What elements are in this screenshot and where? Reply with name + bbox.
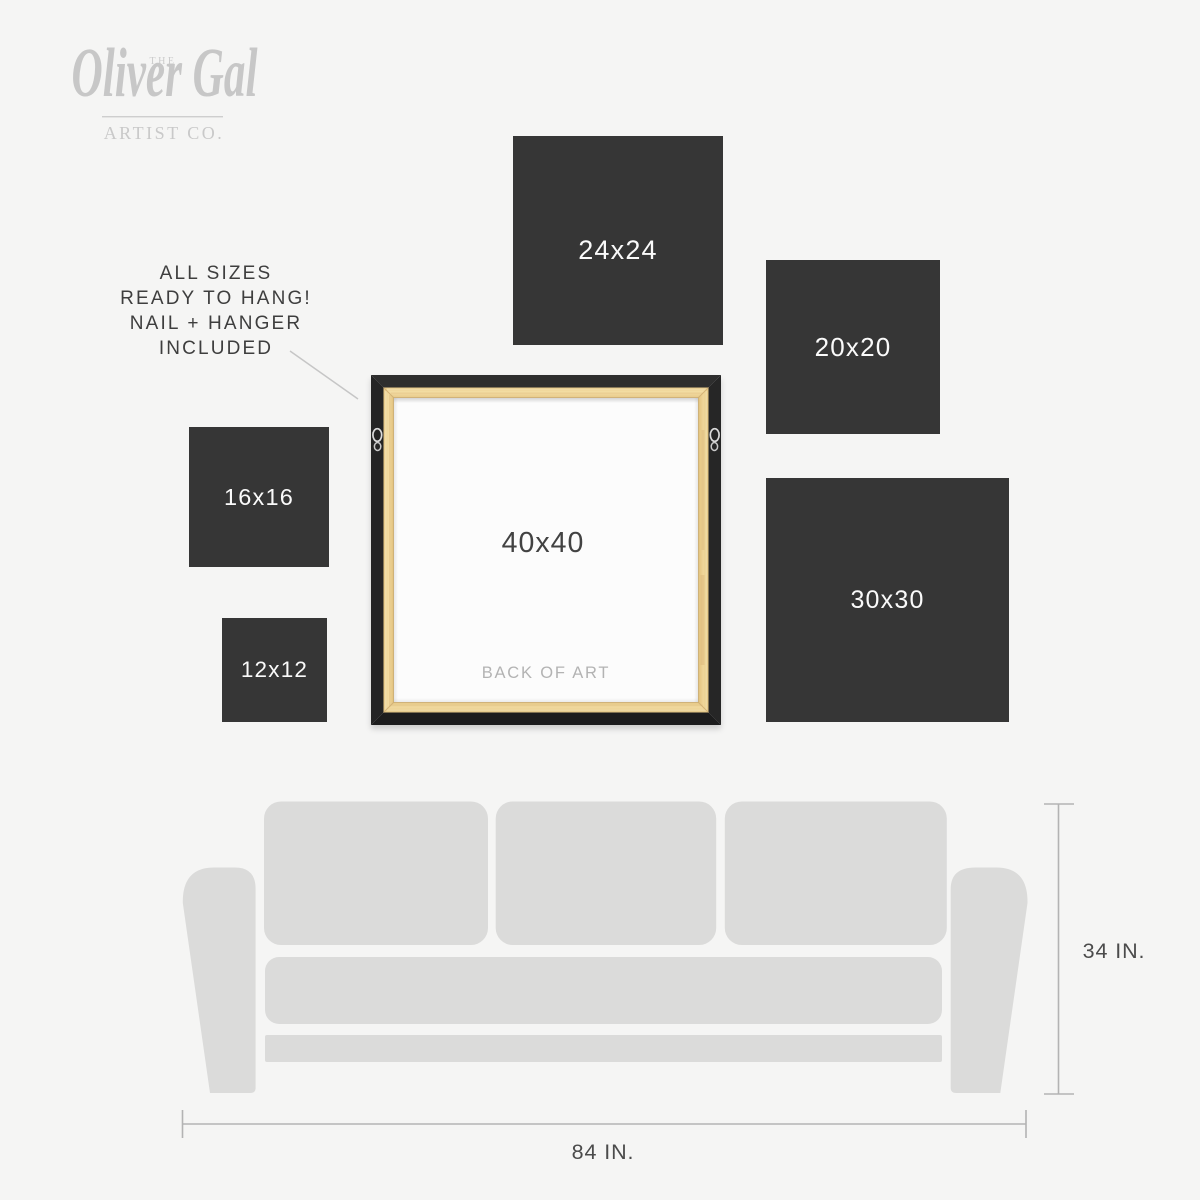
svg-text:40x40: 40x40 xyxy=(502,527,585,559)
svg-text:ARTIST CO.: ARTIST CO. xyxy=(104,123,225,143)
svg-text:Oliver Gal: Oliver Gal xyxy=(72,40,259,112)
svg-text:BACK OF ART: BACK OF ART xyxy=(482,664,611,682)
